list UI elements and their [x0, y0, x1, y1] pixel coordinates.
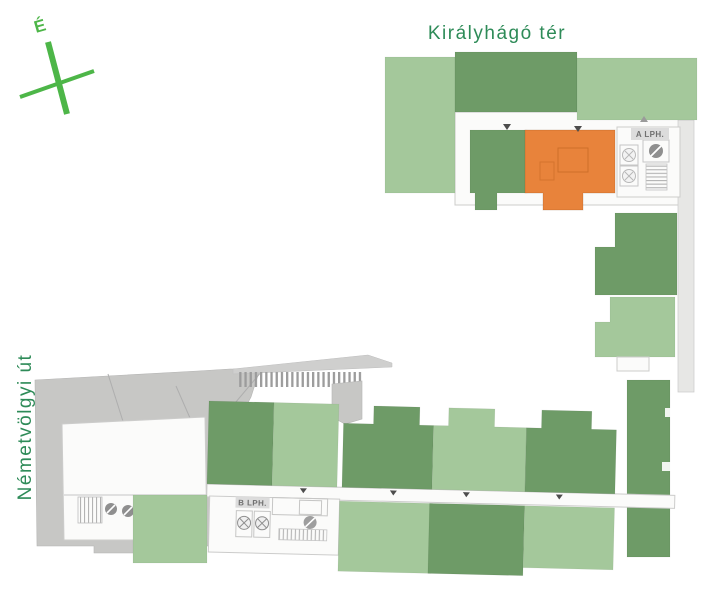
lift-icon	[237, 516, 250, 529]
compass-north-label: É	[32, 15, 48, 36]
lift-icon	[623, 170, 636, 183]
apartment-block[interactable]	[455, 52, 577, 112]
compass-north-arm	[48, 42, 67, 114]
street-name-top: Királyhágó tér	[428, 23, 566, 44]
terrace	[617, 357, 649, 371]
apartment-block[interactable]	[525, 410, 617, 494]
staircase-a-label: A LPH.	[636, 130, 664, 139]
apartment-block[interactable]	[385, 57, 455, 193]
staircase-core-b-floor	[208, 496, 339, 555]
stairs-icon	[646, 164, 667, 190]
compass-rose: É	[20, 15, 94, 114]
apartment-block[interactable]	[207, 401, 274, 486]
elevator-icon	[105, 503, 117, 515]
street-name-left: Németvölgyi út	[15, 354, 36, 501]
staircase-b-label: B LPH.	[238, 498, 267, 508]
apartment-block[interactable]	[428, 503, 525, 575]
apartment-block[interactable]	[272, 403, 339, 488]
balcony-notch	[662, 462, 672, 471]
apartment-block[interactable]	[577, 58, 697, 120]
apartment-block[interactable]	[133, 495, 207, 563]
apartment-block[interactable]	[338, 501, 433, 573]
balcony-notch	[665, 408, 672, 417]
apartment-block[interactable]	[523, 506, 614, 570]
apartment-block[interactable]	[595, 297, 675, 357]
roof-edge-band	[233, 355, 392, 374]
apartment-block[interactable]	[432, 407, 527, 491]
stairs-icon	[279, 529, 327, 541]
lift-icon	[255, 517, 268, 530]
site-plan-page: Királyhágó tér Németvölgyi út É	[0, 0, 720, 614]
elevator-icon	[649, 144, 663, 158]
elevator-icon	[122, 505, 134, 517]
site-plan-canvas: Királyhágó tér Németvölgyi út É	[0, 0, 720, 614]
stairs-icon	[78, 497, 102, 523]
apartment-block[interactable]	[595, 213, 677, 295]
staircase-core-a: A LPH.	[617, 127, 680, 197]
wing-b: B LPH.	[205, 401, 677, 579]
lift-icon	[623, 149, 636, 162]
